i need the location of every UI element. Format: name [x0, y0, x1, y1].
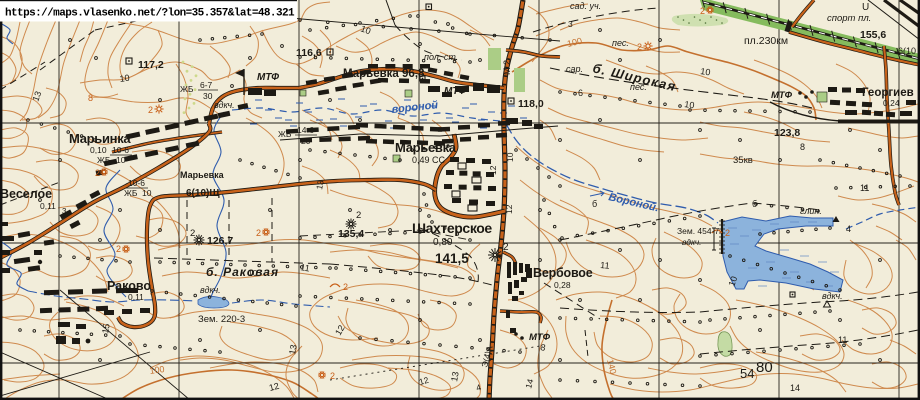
- svg-text:б: б: [752, 199, 757, 209]
- svg-text:вдкч.: вдкч.: [200, 285, 221, 295]
- svg-text:15: 15: [100, 323, 112, 335]
- svg-text:вдкч.: вдкч.: [682, 237, 702, 247]
- svg-text:8: 8: [800, 142, 805, 152]
- svg-text:10: 10: [119, 73, 130, 84]
- svg-text:2: 2: [330, 371, 335, 381]
- svg-text:80: 80: [756, 359, 773, 376]
- svg-text:вдкч.: вдкч.: [214, 100, 235, 110]
- svg-text:11: 11: [838, 335, 847, 345]
- svg-text:135,4: 135,4: [338, 228, 364, 240]
- svg-text:пес.: пес.: [612, 38, 629, 48]
- svg-text:2: 2: [95, 168, 100, 178]
- svg-text:Шахтерское: Шахтерское: [412, 220, 492, 236]
- svg-text:11: 11: [860, 183, 869, 193]
- svg-text:Марьинка: Марьинка: [69, 131, 131, 146]
- svg-text:10: 10: [684, 99, 695, 110]
- svg-text:Марьевка: Марьевка: [180, 170, 225, 180]
- svg-text:11: 11: [300, 262, 311, 273]
- svg-text:ЖБ: ЖБ: [180, 84, 194, 94]
- svg-text:2: 2: [343, 282, 348, 292]
- svg-text:10: 10: [248, 268, 258, 278]
- svg-text:2: 2: [725, 228, 730, 238]
- svg-text:10-6: 10-6: [128, 178, 145, 188]
- svg-text:14: 14: [790, 383, 800, 393]
- svg-text:М 2: М 2: [502, 60, 512, 75]
- svg-text:Зем. 220-3: Зем. 220-3: [198, 314, 245, 325]
- svg-text:ЖБ: ЖБ: [97, 155, 111, 165]
- svg-text:пес.: пес.: [630, 82, 647, 92]
- svg-text:сад. уч.: сад. уч.: [570, 1, 601, 11]
- svg-text:Раково: Раково: [107, 279, 151, 293]
- svg-text:3: 3: [568, 19, 573, 29]
- svg-text:10: 10: [700, 66, 711, 77]
- svg-text:Зем. 454-7: Зем. 454-7: [677, 226, 719, 236]
- svg-text:2: 2: [637, 42, 642, 52]
- svg-text:4: 4: [846, 224, 851, 234]
- svg-text:6: 6: [578, 88, 583, 98]
- svg-text:10: 10: [142, 188, 152, 198]
- svg-text:0,11: 0,11: [40, 201, 56, 211]
- svg-text:54: 54: [740, 366, 754, 381]
- svg-text:6(10: 6(10: [898, 46, 916, 56]
- svg-text:https://maps.vlasenko.net/?lon: https://maps.vlasenko.net/?lon=35.357&la…: [5, 8, 295, 20]
- svg-text:30: 30: [203, 91, 213, 101]
- svg-text:б. Раковая: б. Раковая: [206, 265, 279, 279]
- svg-text:10-6: 10-6: [112, 145, 129, 155]
- svg-text:2: 2: [148, 105, 153, 115]
- svg-text:13: 13: [314, 179, 326, 190]
- svg-text:0,80: 0,80: [433, 237, 453, 248]
- svg-text:12: 12: [504, 204, 514, 214]
- svg-text:6(10)Щ: 6(10)Щ: [186, 188, 220, 199]
- svg-text:13: 13: [287, 344, 299, 356]
- svg-text:2: 2: [700, 6, 705, 16]
- svg-text:6-7: 6-7: [200, 80, 213, 90]
- svg-text:141,5: 141,5: [435, 251, 469, 266]
- svg-text:спорт пл.: спорт пл.: [827, 13, 871, 24]
- svg-text:ЖБ: ЖБ: [124, 188, 138, 198]
- svg-text:U: U: [862, 2, 869, 13]
- svg-text:2: 2: [503, 242, 509, 253]
- svg-text:8: 8: [88, 93, 93, 103]
- svg-text:35кв: 35кв: [733, 155, 753, 166]
- svg-text:100: 100: [149, 364, 165, 376]
- svg-text:глин.: глин.: [800, 206, 822, 216]
- svg-text:пл.230км: пл.230км: [744, 35, 788, 47]
- svg-text:вдкч.: вдкч.: [822, 291, 843, 301]
- svg-text:2: 2: [256, 228, 261, 238]
- svg-text:ЖБ: ЖБ: [278, 129, 292, 139]
- svg-text:МТФ: МТФ: [444, 86, 466, 97]
- svg-text:Веселое: Веселое: [0, 187, 52, 201]
- svg-text:МТФ: МТФ: [529, 332, 551, 343]
- svg-text:116,6: 116,6: [296, 47, 322, 59]
- svg-text:2: 2: [116, 244, 121, 254]
- svg-text:Марьевка 96,8: Марьевка 96,8: [343, 68, 425, 80]
- svg-text:20: 20: [301, 136, 311, 146]
- svg-text:МТФ: МТФ: [257, 72, 279, 83]
- svg-text:10: 10: [116, 155, 126, 165]
- svg-text:2: 2: [356, 210, 361, 221]
- svg-text:14-6: 14-6: [297, 125, 314, 135]
- svg-text:МТФ: МТФ: [771, 90, 793, 101]
- svg-text:0,24: 0,24: [883, 98, 900, 108]
- svg-text:117,2: 117,2: [138, 59, 164, 71]
- svg-text:10: 10: [505, 152, 515, 162]
- svg-text:пол. ст.: пол. ст.: [424, 52, 458, 62]
- svg-text:155,6: 155,6: [860, 29, 886, 41]
- svg-text:126,7: 126,7: [207, 235, 233, 247]
- svg-text:118,0: 118,0: [518, 98, 544, 110]
- svg-text:0,28: 0,28: [554, 280, 571, 290]
- svg-text:0,11: 0,11: [128, 292, 144, 302]
- svg-text:13: 13: [449, 371, 461, 383]
- svg-text:Марьевка: Марьевка: [395, 140, 457, 155]
- svg-text:Вербовое: Вербовое: [533, 266, 593, 280]
- svg-text:12: 12: [488, 165, 498, 175]
- svg-text:11: 11: [600, 260, 610, 271]
- svg-text:0,49 СС: 0,49 СС: [412, 155, 446, 165]
- svg-text:б: б: [592, 199, 597, 209]
- svg-text:123,8: 123,8: [774, 127, 800, 139]
- svg-text:0,10: 0,10: [90, 145, 107, 155]
- svg-text:3: 3: [62, 207, 67, 216]
- svg-text:сар.: сар.: [566, 64, 583, 74]
